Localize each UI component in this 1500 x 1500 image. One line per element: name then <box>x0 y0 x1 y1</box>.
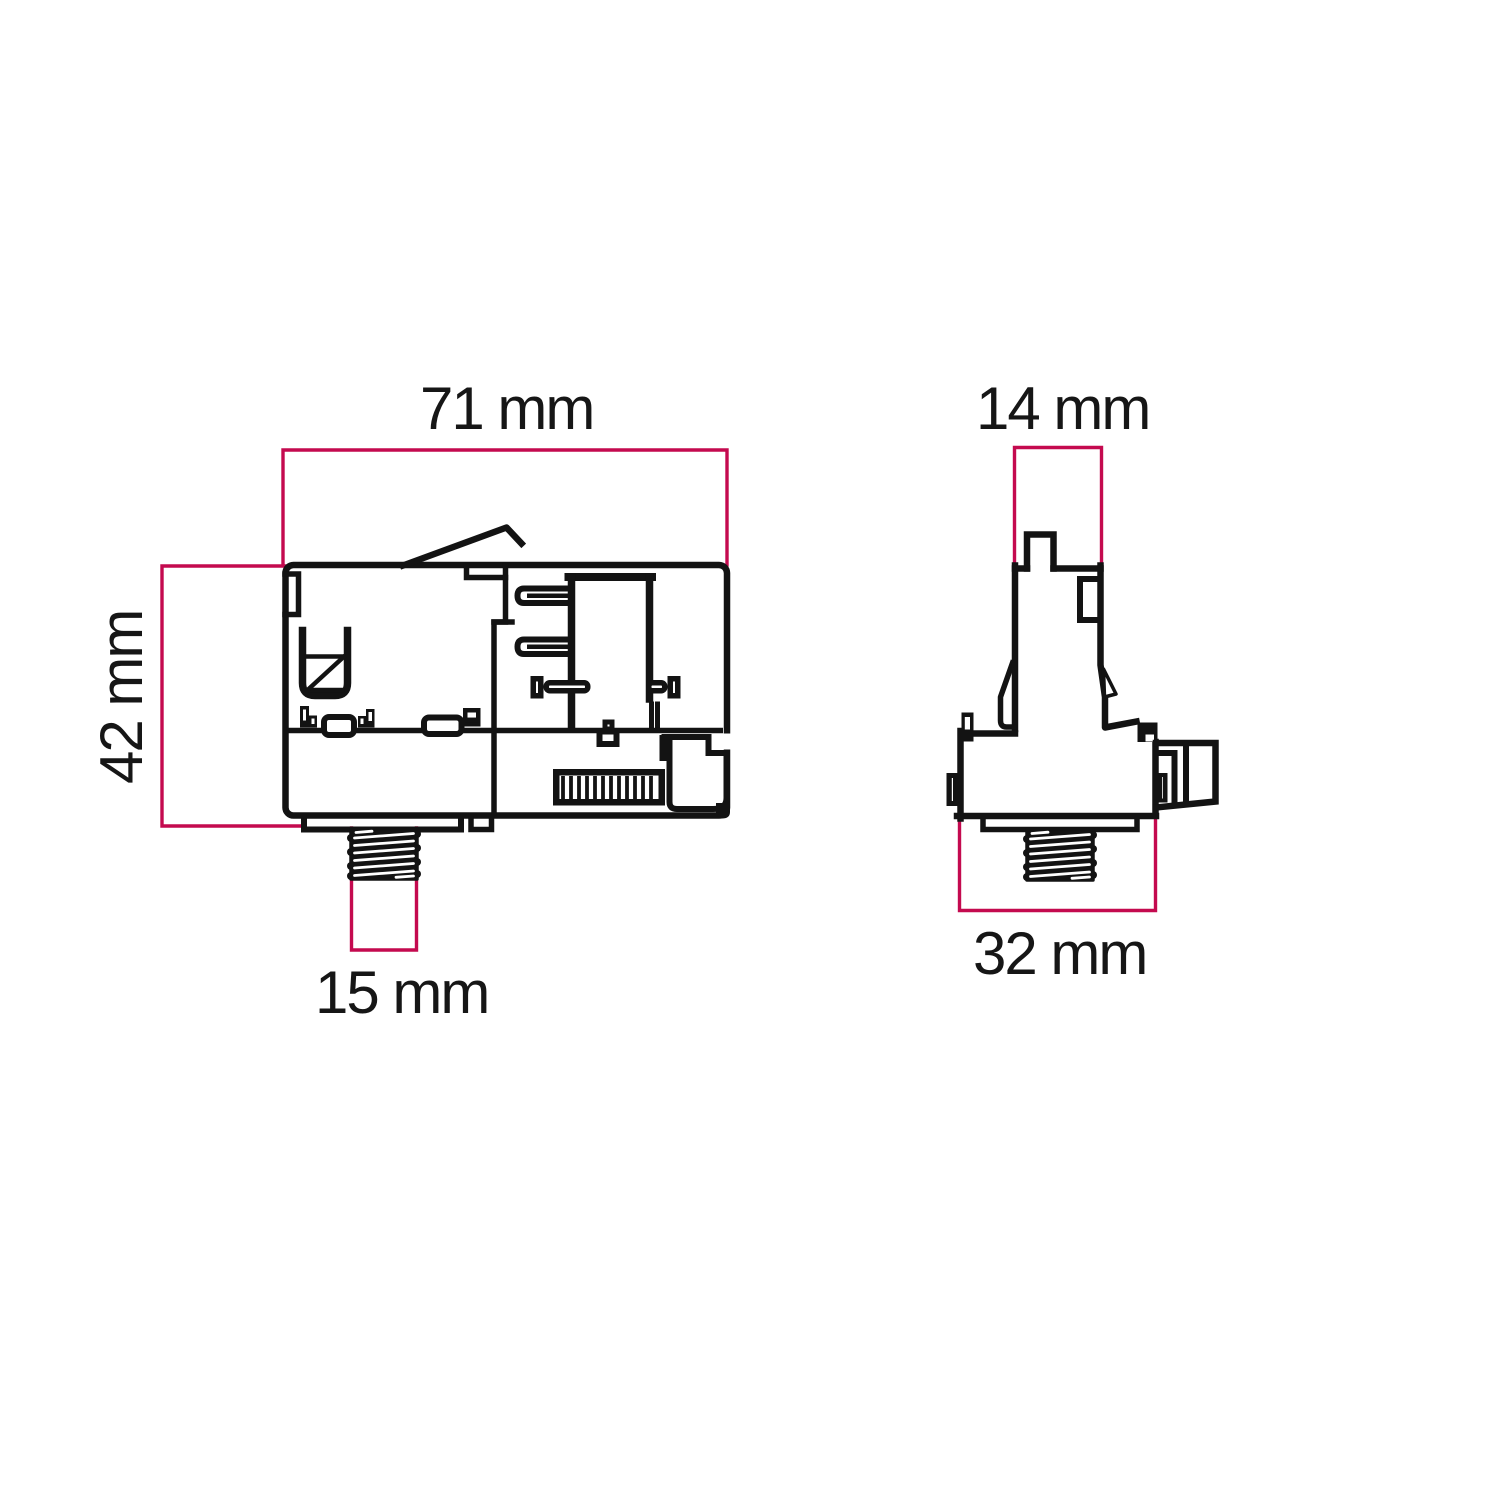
svg-text:32 mm: 32 mm <box>973 920 1146 987</box>
svg-text:71 mm: 71 mm <box>420 375 593 442</box>
svg-text:42 mm: 42 mm <box>88 611 155 784</box>
svg-text:14 mm: 14 mm <box>976 375 1149 442</box>
svg-text:15 mm: 15 mm <box>315 959 488 1026</box>
